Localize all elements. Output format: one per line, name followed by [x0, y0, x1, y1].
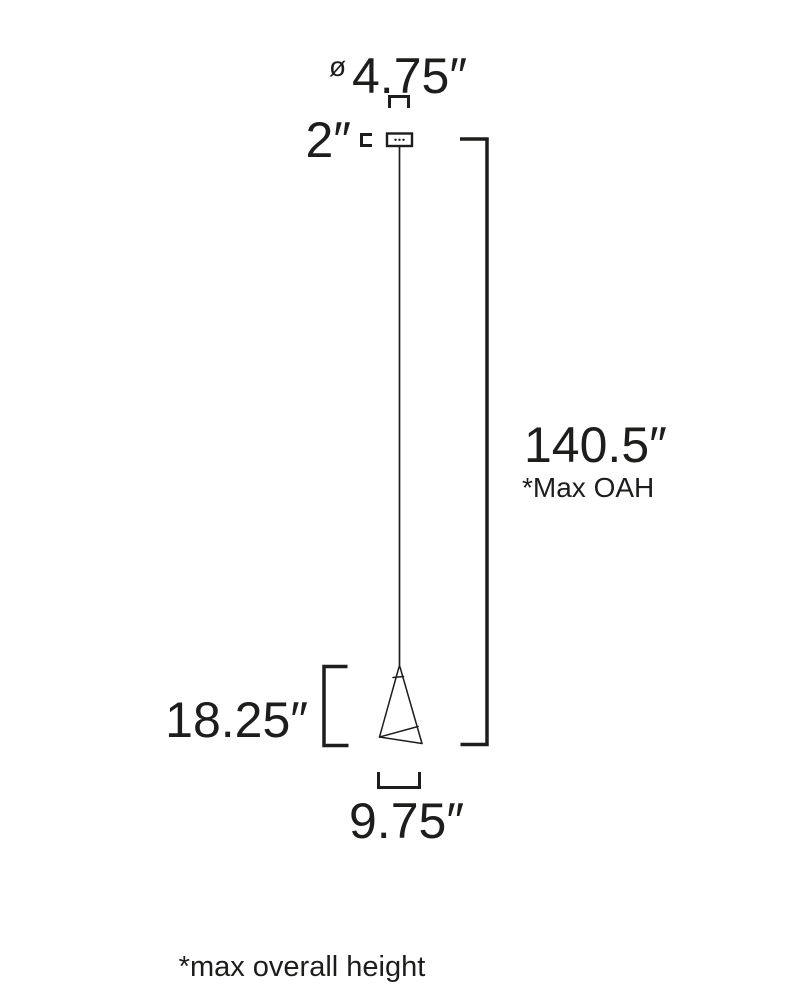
fixture-width-label: 9.75″	[349, 793, 464, 849]
fixture-height-label: 18.25″	[165, 692, 308, 748]
cone-shade	[380, 667, 423, 744]
canopy-height-bracket	[362, 135, 373, 146]
overall-height-bracket	[460, 139, 487, 745]
diameter-symbol: ø	[329, 51, 346, 82]
canopy-diameter-label: 4.75″	[352, 48, 467, 104]
cone-bottom-edge	[380, 737, 423, 744]
max-oah-note: *Max OAH	[522, 472, 654, 503]
canopy-height-label: 2″	[305, 112, 351, 168]
max-overall-height-label: 140.5″	[524, 417, 667, 473]
pendant-dimension-diagram: ø 4.75″ 2″ 140.5″ *Max OAH 18.25″ 9.75″ …	[0, 0, 800, 1000]
footnote: *max overall height	[179, 951, 426, 983]
cone-fold-line	[380, 727, 419, 738]
fixture-width-bracket	[379, 772, 420, 788]
diagram-canvas: ø 4.75″ 2″ 140.5″ *Max OAH 18.25″ 9.75″ …	[0, 0, 800, 1000]
fixture-height-bracket	[324, 667, 349, 746]
canopy-screw-dots	[394, 139, 404, 141]
cone-socket-line	[393, 677, 404, 678]
cone-right-edge	[400, 667, 422, 744]
